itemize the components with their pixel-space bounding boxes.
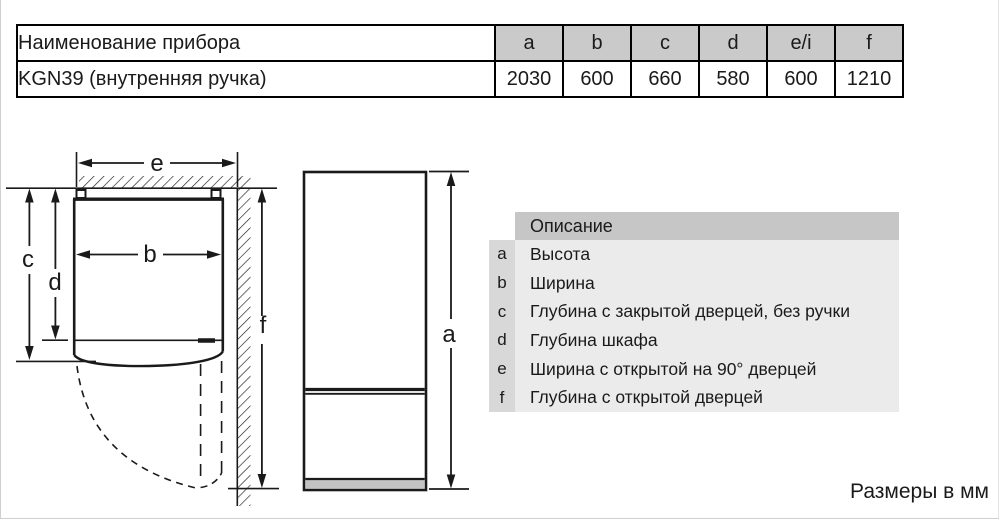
wall-hatch-right (237, 176, 251, 506)
dim-header-f: f (835, 25, 903, 61)
legend-key-f: f (489, 383, 515, 412)
legend: Описание a Высота b Ширина c Глубина с з… (489, 212, 899, 412)
legend-label-f: Глубина с открытой дверцей (515, 383, 899, 412)
legend-label-b: Ширина (515, 269, 899, 298)
dim-c-label: c (22, 246, 34, 273)
legend-item-d: d Глубина шкафа (489, 326, 899, 355)
table-header-row: Наименование прибора a b c d e/i f (17, 25, 903, 61)
legend-key-e: e (489, 355, 515, 384)
dim-b-label: b (143, 241, 156, 268)
legend-item-b: b Ширина (489, 269, 899, 298)
legend-label-e: Ширина с открытой на 90° дверцей (515, 355, 899, 384)
legend-item-f: f Глубина с открытой дверцей (489, 383, 899, 412)
dim-header-d: d (699, 25, 767, 61)
top-view-drawing: e b (1, 140, 291, 519)
legend-item-a: a Высота (489, 240, 899, 269)
dim-d-label: d (48, 269, 61, 296)
table-value-row: KGN39 (внутренняя ручка) 2030 600 660 58… (17, 61, 903, 97)
dim-header-b: b (563, 25, 631, 61)
front-view-drawing: a (296, 155, 481, 519)
spec-sheet-page: Наименование прибора a b c d e/i f KGN39… (0, 0, 999, 519)
dim-value-a: 2030 (495, 61, 563, 97)
legend-key-a: a (489, 240, 515, 269)
plinth (305, 479, 424, 489)
fridge-front-view (304, 172, 426, 490)
legend-label-a: Высота (515, 240, 899, 269)
dim-f: f (228, 189, 279, 489)
dim-value-c: 660 (631, 61, 699, 97)
name-header-cell: Наименование прибора (17, 25, 495, 61)
legend-key-b: b (489, 269, 515, 298)
dim-value-ei: 600 (767, 61, 835, 97)
dim-e-label: e (150, 150, 163, 177)
dim-value-b: 600 (563, 61, 631, 97)
legend-label-c: Глубина с закрытой дверцей, без ручки (515, 297, 899, 326)
dim-b: b (76, 241, 221, 268)
legend-title: Описание (515, 212, 899, 240)
dim-value-f: 1210 (835, 61, 903, 97)
door-front-curve (74, 352, 223, 367)
hinge-left-icon (77, 190, 86, 198)
legend-key-c: c (489, 297, 515, 326)
units-note: Размеры в мм (829, 480, 989, 504)
dim-a: a (429, 172, 469, 490)
fridge-top-view (73, 190, 224, 366)
door-swing-arc (77, 366, 200, 489)
dim-value-d: 580 (699, 61, 767, 97)
legend-title-spacer (489, 212, 515, 240)
legend-item-c: c Глубина с закрытой дверцей, без ручки (489, 297, 899, 326)
dim-d: d (42, 189, 68, 341)
dim-header-c: c (631, 25, 699, 61)
model-cell: KGN39 (внутренняя ручка) (17, 61, 495, 97)
dim-header-a: a (495, 25, 563, 61)
dim-f-label: f (260, 312, 267, 339)
legend-title-row: Описание (489, 212, 899, 240)
door-open-bottom-edge (201, 473, 222, 488)
legend-key-d: d (489, 326, 515, 355)
legend-label-d: Глубина шкафа (515, 326, 899, 355)
legend-item-e: e Ширина с открытой на 90° дверцей (489, 355, 899, 384)
door-open-dashed (77, 361, 222, 489)
dim-a-label: a (442, 321, 456, 348)
hinge-right-icon (212, 190, 221, 198)
fridge-body (304, 172, 426, 490)
dimensions-table: Наименование прибора a b c d e/i f KGN39… (16, 24, 904, 98)
dim-header-ei: e/i (767, 25, 835, 61)
wall-hatch-top (79, 176, 241, 188)
